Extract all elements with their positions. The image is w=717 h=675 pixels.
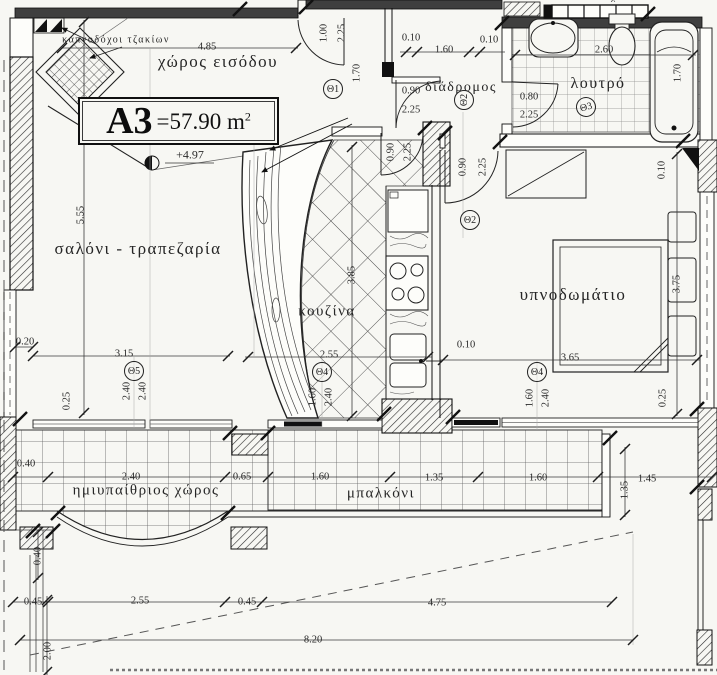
fridge: [388, 190, 428, 232]
kitchen-bedroom-wall: [432, 150, 440, 418]
level-marker-icon: [145, 156, 214, 170]
chimney-flue: [50, 19, 62, 32]
nightstand: [668, 212, 696, 242]
kitchen-counter: [386, 186, 441, 399]
apartment-id: A3: [106, 102, 152, 140]
kitchen-sink: [390, 363, 426, 387]
stove: [386, 256, 428, 310]
nightstand: [668, 316, 696, 356]
bed: [553, 240, 668, 372]
kitchen-top-wall: [332, 127, 382, 136]
door-corridor: [396, 80, 441, 128]
apartment-area: =57.90 m2: [157, 110, 251, 133]
apartment-title-box: A3 =57.90 m2: [78, 97, 279, 145]
bed-sheet-fold: [634, 338, 668, 372]
fireplace: [36, 18, 243, 170]
bedroom-furniture: [506, 150, 696, 372]
balcony-floor-tiles: [16, 430, 602, 540]
floor-plan: A3 =57.90 m2 καπνοδόχοι τζακίωνχώρος εισ…: [0, 0, 717, 675]
left-wall: [10, 57, 33, 290]
toilet: [609, 27, 635, 65]
door-bedroom: [445, 150, 498, 203]
door-entrance: [298, 18, 344, 65]
bathtub: [650, 22, 698, 142]
pier: [231, 527, 267, 549]
projection-line: [30, 532, 633, 655]
toilet-tank: [609, 14, 635, 24]
windows: [33, 418, 698, 428]
balcony-side-wall: [602, 434, 610, 517]
top-wall: [15, 8, 298, 18]
nightstand: [668, 258, 696, 302]
entrance-top-wall: [306, 0, 502, 9]
wall-marker: [682, 148, 699, 171]
kitchen-sink: [390, 334, 426, 360]
chimney-flue: [35, 19, 47, 32]
kitchen-balcony-wall: [382, 399, 452, 433]
